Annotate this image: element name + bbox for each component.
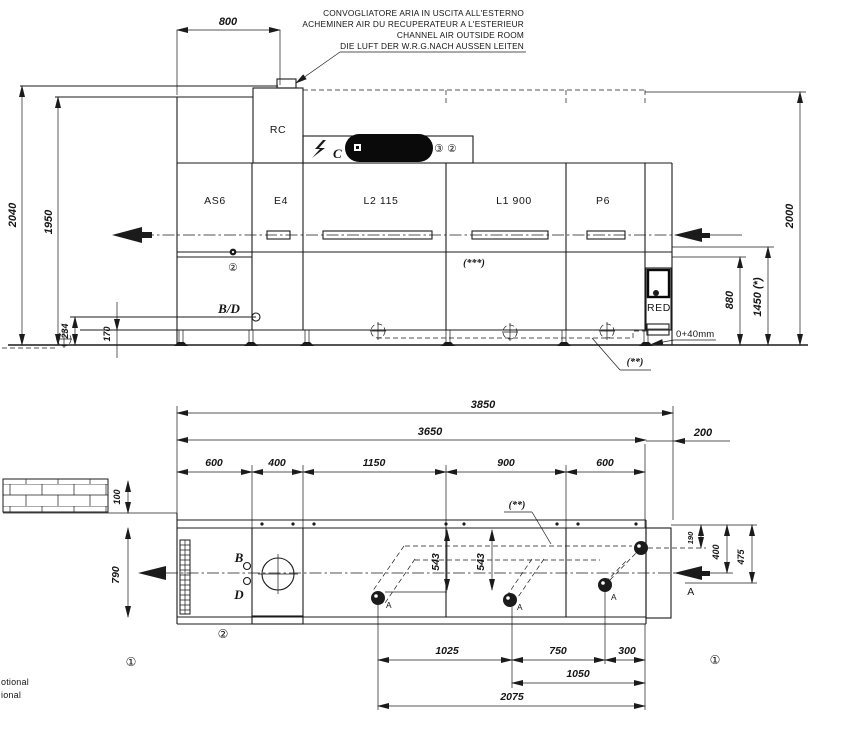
flow-arrow-left-icon [112, 227, 142, 243]
dim-1025: 1025 [435, 645, 459, 657]
plan-dimensions-bottom: 1025 750 300 1050 2075 [378, 592, 645, 710]
panel-note-2: ② [447, 143, 456, 155]
plan-flow-arrow-left-icon [138, 566, 166, 580]
drain-piping-elevation [2, 322, 648, 348]
elevation-dimensions: 800 2040 1950 234 170 880 1450 (*) 2000 [7, 16, 800, 358]
panel-note-3: ③ [434, 143, 443, 155]
plan-note-2star: (**) [509, 500, 526, 511]
dim-170: 170 [102, 326, 112, 341]
air-duct-note: CONVOGLIATORE ARIA IN USCITA ALL'ESTERNO… [296, 8, 526, 83]
elevation-note-2: ② [228, 262, 237, 274]
dim-1150: 1150 [363, 457, 386, 469]
dim-2075: 2075 [499, 691, 524, 703]
section-rc-label: RC [270, 124, 286, 136]
dim-800: 800 [219, 16, 238, 28]
plan-note-1-left: ① [126, 655, 137, 669]
section-p6-label: P6 [596, 195, 610, 207]
conveyor-line-elevation [112, 227, 742, 243]
section-e4-label: E4 [274, 195, 288, 207]
elevation-notes: (**) (***) [463, 258, 651, 370]
dim-3650: 3650 [418, 426, 443, 438]
dim-100: 100 [112, 489, 122, 504]
drain-a3-label: A [611, 592, 617, 602]
plan-note-1-right: ① [710, 653, 721, 667]
dim-1050: 1050 [566, 668, 590, 680]
dim-3850: 3850 [471, 399, 496, 411]
plan-view: B D A A A (**) [3, 399, 757, 710]
dim-190: 190 [686, 531, 695, 544]
dishwasher-layout-drawing: C ③ ② RC AS6 E4 L2 115 L1 900 P6 [0, 0, 862, 731]
plan-drains: A A A [371, 541, 706, 612]
bd-label: B/D [217, 301, 240, 316]
section-a-label: A [687, 586, 695, 598]
dim-234: 234 [60, 323, 70, 339]
dim-790: 790 [110, 566, 122, 584]
dim-900: 900 [497, 457, 515, 469]
section-a-marker: A [685, 583, 757, 598]
panel-letter: C [333, 146, 342, 161]
plan-dimensions-left: 100 790 [110, 481, 128, 617]
dim-300: 300 [618, 645, 636, 657]
dim-400r: 400 [711, 544, 721, 560]
dim-400a: 400 [267, 457, 286, 469]
dim-1950: 1950 [43, 209, 55, 234]
dim-2000: 2000 [784, 203, 796, 229]
plan-b-label: B [234, 550, 244, 565]
flow-arrow-right-icon [674, 228, 702, 242]
legend-clipped: otional ional [1, 677, 29, 700]
control-panel: C ③ ② [303, 134, 473, 163]
dim-1450: 1450 (*) [752, 277, 764, 316]
section-l2-label: L2 115 [364, 195, 399, 207]
air-note-line3: CHANNEL AIR OUTSIDE ROOM [397, 30, 524, 40]
drain-main [634, 541, 648, 555]
drain-a1-label: A [386, 600, 392, 610]
plan-outline [177, 513, 671, 624]
plan-note: (**) [504, 500, 551, 544]
wall-section [3, 479, 108, 512]
legend-line1: otional [1, 677, 29, 687]
curtain-strip [180, 540, 190, 614]
plan-d-label: D [233, 587, 244, 602]
drain-a1 [371, 591, 385, 605]
lightning-icon [312, 140, 326, 158]
dim-600b: 600 [596, 457, 614, 469]
drain-a3 [598, 578, 612, 592]
dim-200: 200 [693, 427, 713, 439]
plan-dimensions-543: 543 543 [430, 530, 492, 590]
section-as6-label: AS6 [204, 195, 226, 207]
air-note-line4: DIE LUFT DER W.R.G.NACH AUSSEN LEITEN [340, 41, 524, 51]
legend-line2: ional [1, 690, 21, 700]
foot-adjust-label: 0+40mm [676, 329, 714, 340]
bd-connection: B/D ② [217, 249, 260, 321]
drain-a2-label: A [517, 602, 523, 612]
plan-dimensions-top: 3850 3650 200 600 400 1150 900 600 [177, 399, 730, 528]
air-note-line1: CONVOGLIATORE ARIA IN USCITA ALL'ESTERNO [323, 8, 524, 18]
elevation-outline [8, 79, 808, 345]
air-note-line2: ACHEMINER AIR DU RECUPERATEUR A L'ESTERI… [302, 19, 524, 29]
red-compartment: RED [646, 268, 671, 335]
technical-drawing-canvas: C ③ ② RC AS6 E4 L2 115 L1 900 P6 [0, 0, 862, 731]
elevation-view: C ③ ② RC AS6 E4 L2 115 L1 900 P6 [2, 8, 808, 370]
dim-2040: 2040 [7, 202, 19, 228]
red-label: RED [647, 302, 671, 314]
plan-note-2-ref: ② [218, 627, 229, 641]
plan-flow-arrow-right-icon [674, 566, 702, 580]
foot-adjust-note: 0+40mm [652, 329, 716, 344]
plan-bd-ports: B D [233, 550, 298, 602]
note-3star: (***) [463, 258, 485, 269]
dim-475: 475 [736, 549, 746, 566]
dim-543a: 543 [430, 553, 442, 571]
dim-750: 750 [549, 645, 567, 657]
section-l1-label: L1 900 [496, 195, 532, 207]
dim-543b: 543 [475, 553, 487, 571]
fastener-dots [260, 522, 637, 525]
drain-a2 [503, 593, 517, 607]
dim-880: 880 [724, 290, 736, 309]
dim-600a: 600 [205, 457, 223, 469]
note-2star: (**) [627, 357, 644, 368]
